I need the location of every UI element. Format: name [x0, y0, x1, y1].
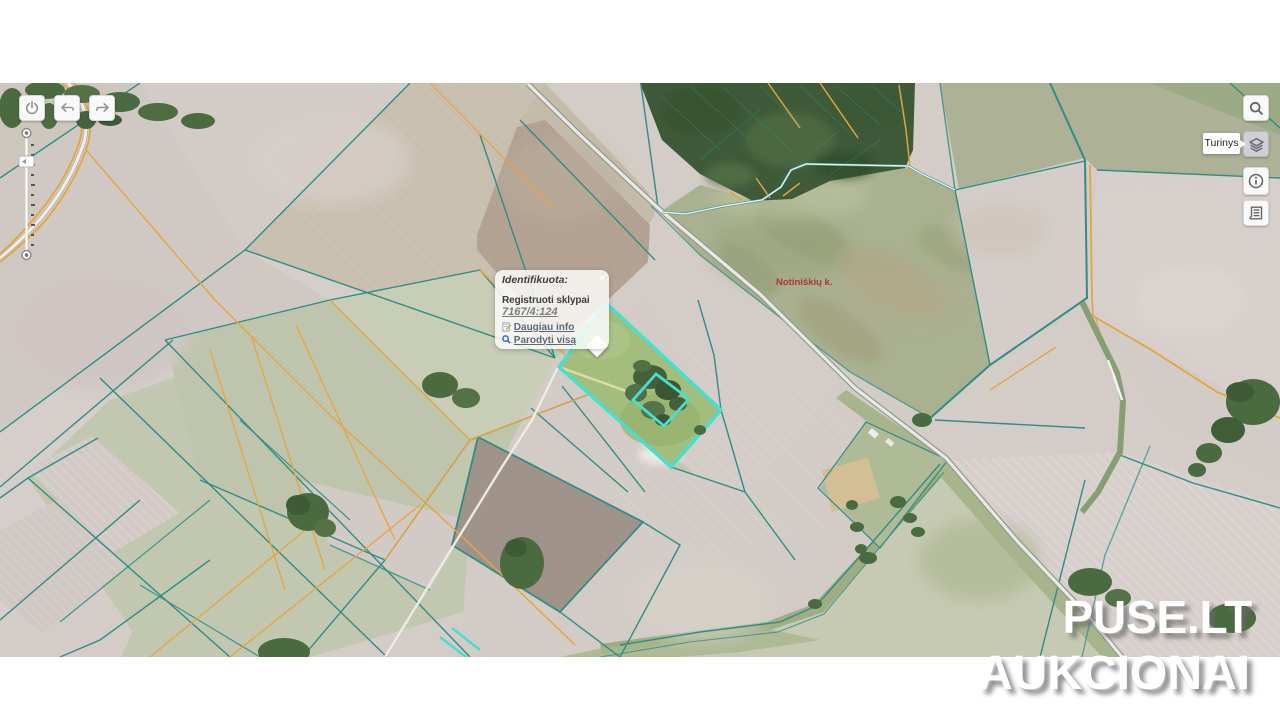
svg-text:Notiniškių k.: Notiniškių k.: [776, 277, 832, 288]
